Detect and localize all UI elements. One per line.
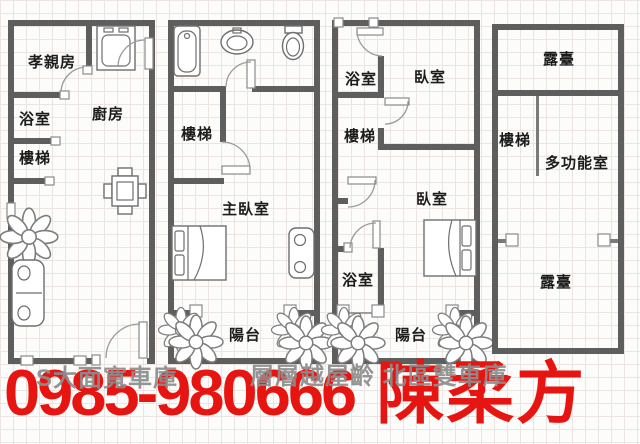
- floorplan-flyer: 孝親房 浴室 樓梯 廚房 樓梯 主臥室 陽台 浴室 臥室 樓梯 臥室 浴室 陽台…: [0, 0, 640, 444]
- room-label-multipurpose-room: 多功能室: [545, 156, 609, 171]
- room-label-bedroom-bottom-f3: 臥室: [416, 192, 448, 207]
- plant-icon: [0, 208, 58, 266]
- floor2-plan: [159, 20, 334, 370]
- toilet-icon: [283, 26, 304, 60]
- room-label-kitchen-f1: 廚房: [92, 107, 124, 122]
- stove-icon: [97, 26, 135, 70]
- room-label-stairs-f3: 樓梯: [344, 129, 376, 144]
- watermark-text-right: 層層越屋齡 北區雙車庫: [250, 365, 508, 389]
- room-label-terrace-bottom-f4: 露臺: [540, 275, 572, 290]
- bathtub-icon: [174, 26, 200, 76]
- room-label-bathroom-bottom-f3: 浴室: [342, 273, 374, 288]
- door-swing-icon: [222, 60, 255, 174]
- room-label-stairs-f2: 樓梯: [181, 127, 213, 142]
- room-label-parents-room: 孝親房: [28, 55, 76, 70]
- watermark-text-left: S大面寬車庫: [36, 367, 178, 391]
- dining-table-icon: [104, 168, 146, 214]
- balcony-post-icon: [506, 234, 610, 246]
- room-label-terrace-top-f4: 露臺: [543, 52, 575, 67]
- room-label-master-bedroom: 主臥室: [222, 202, 270, 217]
- room-label-bathroom-f1: 浴室: [19, 112, 51, 127]
- room-label-balcony-f2: 陽台: [229, 328, 261, 343]
- floor4-plan: [492, 24, 624, 354]
- floor4-walls: [492, 24, 624, 354]
- washbasin-icon: [221, 28, 253, 54]
- floor1-plan: [0, 20, 155, 365]
- room-label-balcony-f3: 陽台: [395, 328, 427, 343]
- room-label-bedroom-top-f3: 臥室: [414, 70, 446, 85]
- room-label-stairs-f1: 樓梯: [19, 151, 51, 166]
- sofa-icon: [12, 260, 44, 326]
- room-label-stairs-f4: 樓梯: [499, 133, 531, 148]
- armchair-icon: [289, 228, 314, 278]
- double-bed-icon: [424, 220, 476, 276]
- double-bed-icon: [172, 226, 226, 280]
- room-label-bathroom-top-f3: 浴室: [345, 72, 377, 87]
